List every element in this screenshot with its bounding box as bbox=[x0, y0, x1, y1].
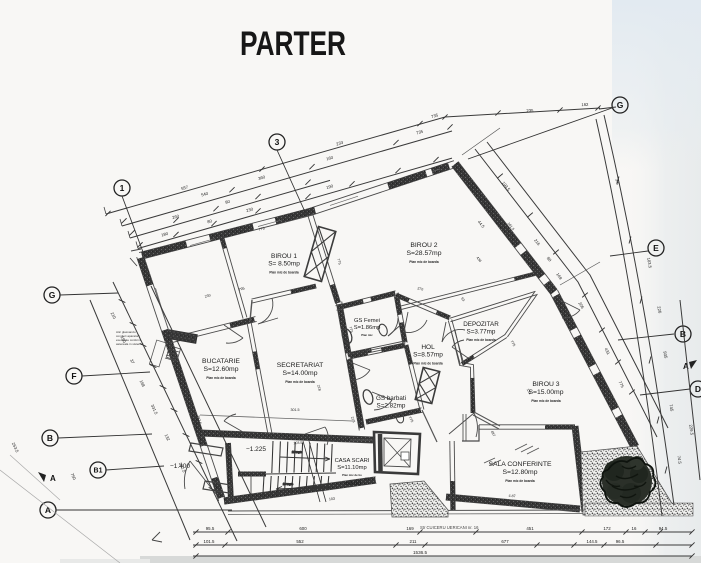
svg-text:S=14.00mp: S=14.00mp bbox=[283, 370, 318, 377]
svg-text:235: 235 bbox=[526, 108, 534, 113]
svg-text:451: 451 bbox=[526, 526, 534, 531]
svg-text:S=15.00mp: S=15.00mp bbox=[529, 389, 564, 396]
svg-text:169: 169 bbox=[406, 526, 414, 531]
svg-text:−1.225: −1.225 bbox=[246, 446, 266, 453]
svg-text:1536.5: 1536.5 bbox=[413, 550, 427, 555]
svg-text:G: G bbox=[49, 290, 56, 300]
svg-text:95.5: 95.5 bbox=[206, 526, 215, 531]
svg-text:Str CUICERU UERICANI nr. 16: Str CUICERU UERICANI nr. 16 bbox=[420, 525, 479, 530]
svg-text:103: 103 bbox=[329, 497, 335, 501]
svg-text:F: F bbox=[71, 371, 76, 381]
svg-text:162: 162 bbox=[581, 102, 589, 107]
svg-text:101.5: 101.5 bbox=[204, 539, 216, 544]
svg-text:S=2.82mp: S=2.82mp bbox=[377, 403, 406, 410]
svg-text:BIROU 1: BIROU 1 bbox=[271, 253, 297, 260]
svg-text:Plan mic de boarda: Plan mic de boarda bbox=[413, 361, 442, 365]
svg-text:4.87: 4.87 bbox=[508, 494, 515, 498]
svg-text:S=12.60mp: S=12.60mp bbox=[204, 366, 239, 373]
svg-text:S=8.57mp: S=8.57mp bbox=[413, 352, 443, 359]
svg-text:Plan mic de boarda: Plan mic de boarda bbox=[285, 380, 314, 384]
svg-text:±0.00: ±0.00 bbox=[345, 480, 362, 487]
svg-text:96.5: 96.5 bbox=[616, 539, 625, 544]
svg-text:677: 677 bbox=[501, 539, 509, 544]
svg-text:S=12.80mp: S=12.80mp bbox=[503, 469, 538, 476]
svg-text:A: A bbox=[45, 505, 51, 515]
svg-text:Plan mic de boarda: Plan mic de boarda bbox=[206, 376, 235, 380]
svg-text:S=3.77mp: S=3.77mp bbox=[467, 329, 496, 336]
svg-text:astereala in sistemul: astereala in sistemul bbox=[116, 342, 144, 346]
svg-text:Plan mic de bo: Plan mic de bo bbox=[342, 473, 362, 477]
svg-text:D: D bbox=[695, 384, 701, 394]
svg-text:Plan mic de boarda: Plan mic de boarda bbox=[466, 338, 495, 342]
svg-text:DEPOZITAR: DEPOZITAR bbox=[463, 321, 499, 328]
svg-text:HOL: HOL bbox=[421, 344, 435, 351]
svg-text:Plan mic: Plan mic bbox=[361, 333, 373, 337]
svg-text:CASA SCARI: CASA SCARI bbox=[335, 458, 370, 464]
svg-text:S= 8.50mp: S= 8.50mp bbox=[268, 261, 300, 268]
svg-text:S=1.86mp: S=1.86mp bbox=[354, 325, 381, 331]
svg-text:GS Femei: GS Femei bbox=[354, 318, 380, 324]
svg-text:G: G bbox=[617, 100, 624, 110]
svg-text:A: A bbox=[50, 474, 56, 483]
svg-text:S=11.10mp: S=11.10mp bbox=[337, 465, 366, 471]
svg-text:GS barbati: GS barbati bbox=[376, 395, 406, 402]
svg-text:B1: B1 bbox=[94, 468, 103, 475]
svg-text:172: 172 bbox=[603, 526, 611, 531]
svg-text:211: 211 bbox=[410, 539, 418, 544]
svg-text:1: 1 bbox=[120, 183, 125, 193]
svg-text:Plan mic de boarda: Plan mic de boarda bbox=[269, 270, 298, 274]
svg-text:PARTER: PARTER bbox=[240, 25, 346, 63]
svg-text:94.5: 94.5 bbox=[659, 526, 668, 531]
svg-text:95: 95 bbox=[365, 477, 369, 481]
svg-text:S=28.57mp: S=28.57mp bbox=[407, 250, 442, 257]
svg-text:Plan mic de boarda: Plan mic de boarda bbox=[409, 260, 438, 264]
svg-text:552: 552 bbox=[296, 539, 304, 544]
svg-text:B: B bbox=[47, 433, 53, 443]
svg-text:SECRETARIAT: SECRETARIAT bbox=[277, 362, 324, 369]
svg-text:10 trepte: 10 trepte bbox=[292, 450, 303, 454]
svg-text:103.5: 103.5 bbox=[293, 441, 302, 445]
svg-text:BIROU 3: BIROU 3 bbox=[532, 381, 559, 388]
svg-text:10 trepte: 10 trepte bbox=[283, 482, 294, 486]
svg-text:600: 600 bbox=[299, 526, 307, 531]
svg-text:Plan mic de boarda: Plan mic de boarda bbox=[531, 399, 560, 403]
svg-text:16: 16 bbox=[632, 526, 637, 531]
svg-text:144.5: 144.5 bbox=[587, 539, 599, 544]
svg-text:SALA CONFERINTE: SALA CONFERINTE bbox=[488, 461, 552, 468]
svg-text:3: 3 bbox=[275, 137, 280, 147]
svg-text:Plan mic de boarda: Plan mic de boarda bbox=[505, 479, 534, 483]
svg-text:E: E bbox=[653, 243, 659, 253]
svg-text:BUCATARIE: BUCATARIE bbox=[202, 358, 240, 365]
svg-text:BIROU 2: BIROU 2 bbox=[410, 242, 437, 249]
svg-text:301.5: 301.5 bbox=[291, 408, 300, 412]
